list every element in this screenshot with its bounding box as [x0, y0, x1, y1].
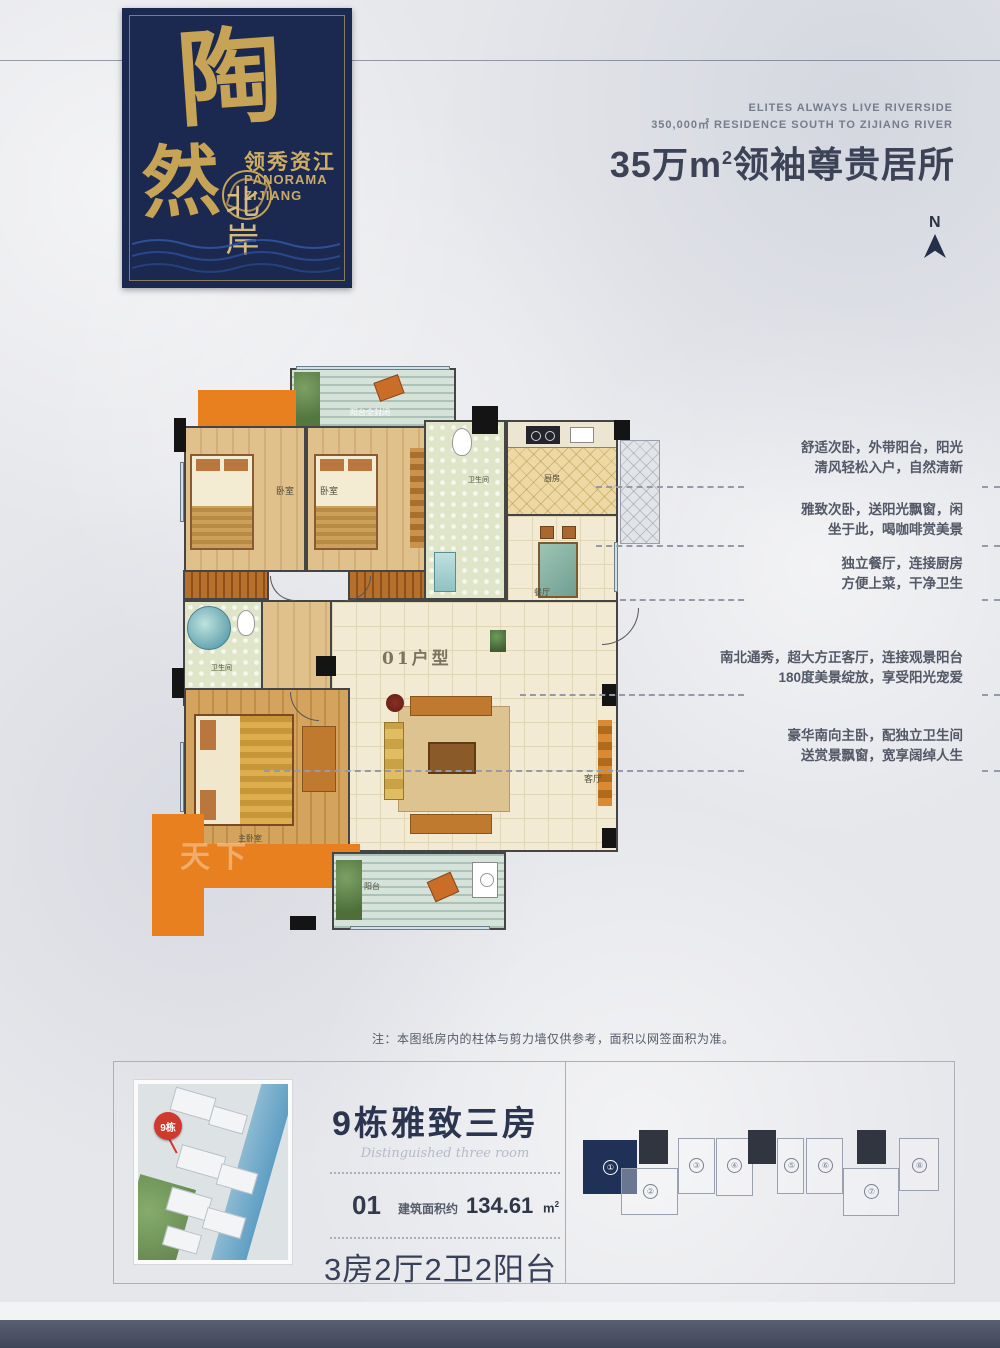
plant-pot-icon	[386, 694, 404, 712]
bottom-dark-bar	[0, 1320, 1000, 1348]
window	[614, 542, 618, 592]
keyplan-number-1: ①	[603, 1160, 618, 1175]
dotted-divider	[330, 1172, 560, 1174]
label-bedroom-left: 卧室	[276, 486, 294, 496]
leader-line	[620, 599, 744, 601]
column-block	[172, 668, 184, 698]
annotation-line: 坐于此，喝咖啡赏美景	[801, 520, 963, 540]
headline-suffix: 领袖尊贵居所	[733, 144, 955, 185]
area-unit: m2	[543, 1200, 559, 1215]
room-kitchen: 厨房	[506, 420, 618, 516]
header-en-line2: 350,000㎡ RESIDENCE SOUTH TO ZIJIANG RIVE…	[651, 116, 953, 132]
label-kitchen: 厨房	[544, 474, 560, 484]
sofa-icon	[410, 696, 492, 716]
annotation-line: 南北通秀，超大方正客厅，连接观景阳台	[720, 648, 963, 668]
wardrobe-icon	[410, 448, 424, 548]
keyplan-core-block	[748, 1130, 776, 1164]
wardrobe-strip-left	[183, 570, 269, 600]
annotation-line: 雅致次卧，送阳光飘窗，闲	[801, 500, 963, 520]
label-bedroom-right: 卧室	[320, 486, 338, 496]
column-block	[316, 656, 336, 676]
leader-line	[520, 694, 744, 696]
annotation-line: 清风轻松入户，自然清新	[801, 458, 963, 478]
kitchen-counter-icon	[508, 422, 616, 448]
keyplan-number-3: ③	[689, 1158, 704, 1173]
sink-icon	[570, 427, 594, 443]
orange-block-top	[198, 390, 296, 428]
bottom-light-strip	[0, 1302, 1000, 1320]
watermark: 天下	[180, 832, 252, 876]
layout-summary: 3房2厅2卫2阳台	[324, 1244, 557, 1289]
chair-icon	[562, 526, 576, 539]
headline-prefix: 35万m	[610, 144, 722, 185]
annotation-line: 豪华南向主卧，配独立卫生间	[788, 726, 964, 746]
label-balcony-top: 阳台全封闭	[350, 408, 390, 418]
bed-icon	[190, 454, 254, 550]
keyplan-core-block	[857, 1130, 886, 1164]
area-label: 建筑面积约	[398, 1200, 458, 1217]
keyplan-number-4: ④	[727, 1158, 742, 1173]
keyplan-number-5: ⑤	[784, 1158, 799, 1173]
area-value: 134.61	[466, 1193, 533, 1219]
unit-number: 01	[352, 1190, 381, 1221]
dotted-divider	[330, 1237, 560, 1239]
annotation-line: 180度美景绽放，享受阳光宠爱	[720, 668, 963, 688]
washing-machine-icon	[472, 862, 498, 898]
compass-label: N	[929, 214, 941, 232]
column-block	[472, 406, 498, 434]
header-en-line1: ELITES ALWAYS LIVE RIVERSIDE	[749, 102, 953, 114]
keyplan-number-7: ⑦	[864, 1184, 879, 1199]
aerial-photo: 9栋	[138, 1084, 288, 1260]
room-bedroom-right	[306, 426, 428, 572]
public-corridor-area	[620, 440, 660, 544]
label-bathroom: 卫生间	[468, 476, 489, 486]
logo-calligraphy-ran: 然	[140, 142, 222, 224]
headline-sup: 2	[722, 148, 733, 168]
leader-line	[596, 545, 744, 547]
door-arc	[602, 608, 639, 645]
plant-icon	[336, 860, 362, 920]
badge-pointer	[168, 1138, 177, 1153]
leader-line	[982, 770, 1000, 772]
toilet-icon	[237, 610, 255, 636]
leader-line	[264, 770, 744, 772]
annotation-dining: 独立餐厅，连接厨房 方便上菜，干净卫生	[842, 554, 964, 594]
annotation-line: 舒适次卧，外带阳台，阳光	[801, 438, 963, 458]
balcony-chair-icon	[373, 374, 404, 402]
washbasin-icon	[434, 552, 456, 592]
keyplan-number-8: ⑧	[912, 1158, 927, 1173]
label-dining: 餐厅	[534, 588, 550, 598]
window	[180, 462, 184, 522]
annotation-bedroom-2: 雅致次卧，送阳光飘窗，闲 坐于此，喝咖啡赏美景	[801, 500, 963, 540]
toilet-icon	[452, 428, 472, 456]
column-block	[614, 420, 630, 440]
page-headline: 35万m2领袖尊贵居所	[610, 136, 955, 188]
room-bathroom: 卫生间	[424, 420, 506, 600]
label-balcony-bottom: 阳台	[364, 882, 380, 892]
balcony-mat-icon	[427, 872, 460, 903]
tv-cabinet-icon	[598, 720, 612, 806]
annotation-living: 南北通秀，超大方正客厅，连接观景阳台 180度美景绽放，享受阳光宠爱	[720, 648, 963, 688]
window	[350, 926, 490, 930]
annotation-master: 豪华南向主卧，配独立卫生间 送赏景飘窗，宽享阔绰人生	[788, 726, 964, 766]
bottom-title: 9栋雅致三房	[332, 1096, 539, 1145]
sofa-icon	[410, 814, 492, 834]
unit-type-label: 01户型	[382, 644, 452, 669]
disclaimer-note: 注：本图纸房内的柱体与剪力墙仅供参考，面积以网签面积为准。	[372, 1030, 735, 1047]
keyplan-core-block	[639, 1130, 668, 1164]
annotation-bedroom-1: 舒适次卧，外带阳台，阳光 清风轻松入户，自然清新	[801, 438, 963, 478]
leader-line	[982, 486, 1000, 488]
leader-line	[982, 694, 1000, 696]
room-balcony-bottom: 阳台	[332, 852, 506, 930]
bottom-subtitle-script: Distinguished three room	[330, 1146, 560, 1161]
plant-icon	[490, 630, 506, 652]
column-block	[602, 828, 616, 848]
bottom-vertical-divider	[565, 1061, 566, 1284]
logo-waves-icon	[132, 234, 340, 280]
sofa-icon	[384, 722, 404, 800]
column-block	[174, 418, 186, 452]
aerial-photo-card: 9栋	[133, 1079, 293, 1265]
bed-icon	[314, 454, 378, 550]
column-block	[290, 916, 316, 930]
floor-plan: 阳台全封闭 卧室 卧室 卫生间 卫生间	[150, 362, 662, 934]
door-arc	[270, 576, 295, 601]
keyplan-number-6: ⑥	[818, 1158, 833, 1173]
keyplan-number-2: ②	[643, 1184, 658, 1199]
annotation-line: 独立餐厅，连接厨房	[842, 554, 964, 574]
chair-icon	[540, 526, 554, 539]
room-bedroom-left	[184, 426, 306, 572]
room-balcony-top: 阳台全封闭	[290, 368, 456, 428]
leader-line	[596, 486, 744, 488]
area-unit-sup: 2	[555, 1200, 559, 1209]
plant-icon	[294, 372, 320, 426]
window	[180, 742, 184, 812]
label-master-bathroom: 卫生间	[211, 664, 232, 674]
shower-icon	[187, 606, 231, 650]
area-unit-m: m	[543, 1200, 555, 1215]
building-9-badge: 9栋	[154, 1112, 182, 1140]
leader-line	[982, 599, 1000, 601]
stove-icon	[526, 426, 560, 444]
building-block	[208, 1105, 248, 1134]
logo-badge: 陶 然 领秀资江 PANORAMA ZIJIANG 北岸	[122, 8, 352, 288]
leader-line	[982, 545, 1000, 547]
annotation-line: 方便上菜，干净卫生	[842, 574, 964, 594]
room-living: 客厅	[330, 600, 618, 852]
annotation-line: 送赏景飘窗，宽享阔绰人生	[788, 746, 964, 766]
logo-calligraphy-tao: 陶	[174, 22, 285, 133]
label-living: 客厅	[584, 774, 602, 784]
window	[296, 366, 450, 370]
chaise-icon	[302, 726, 336, 792]
